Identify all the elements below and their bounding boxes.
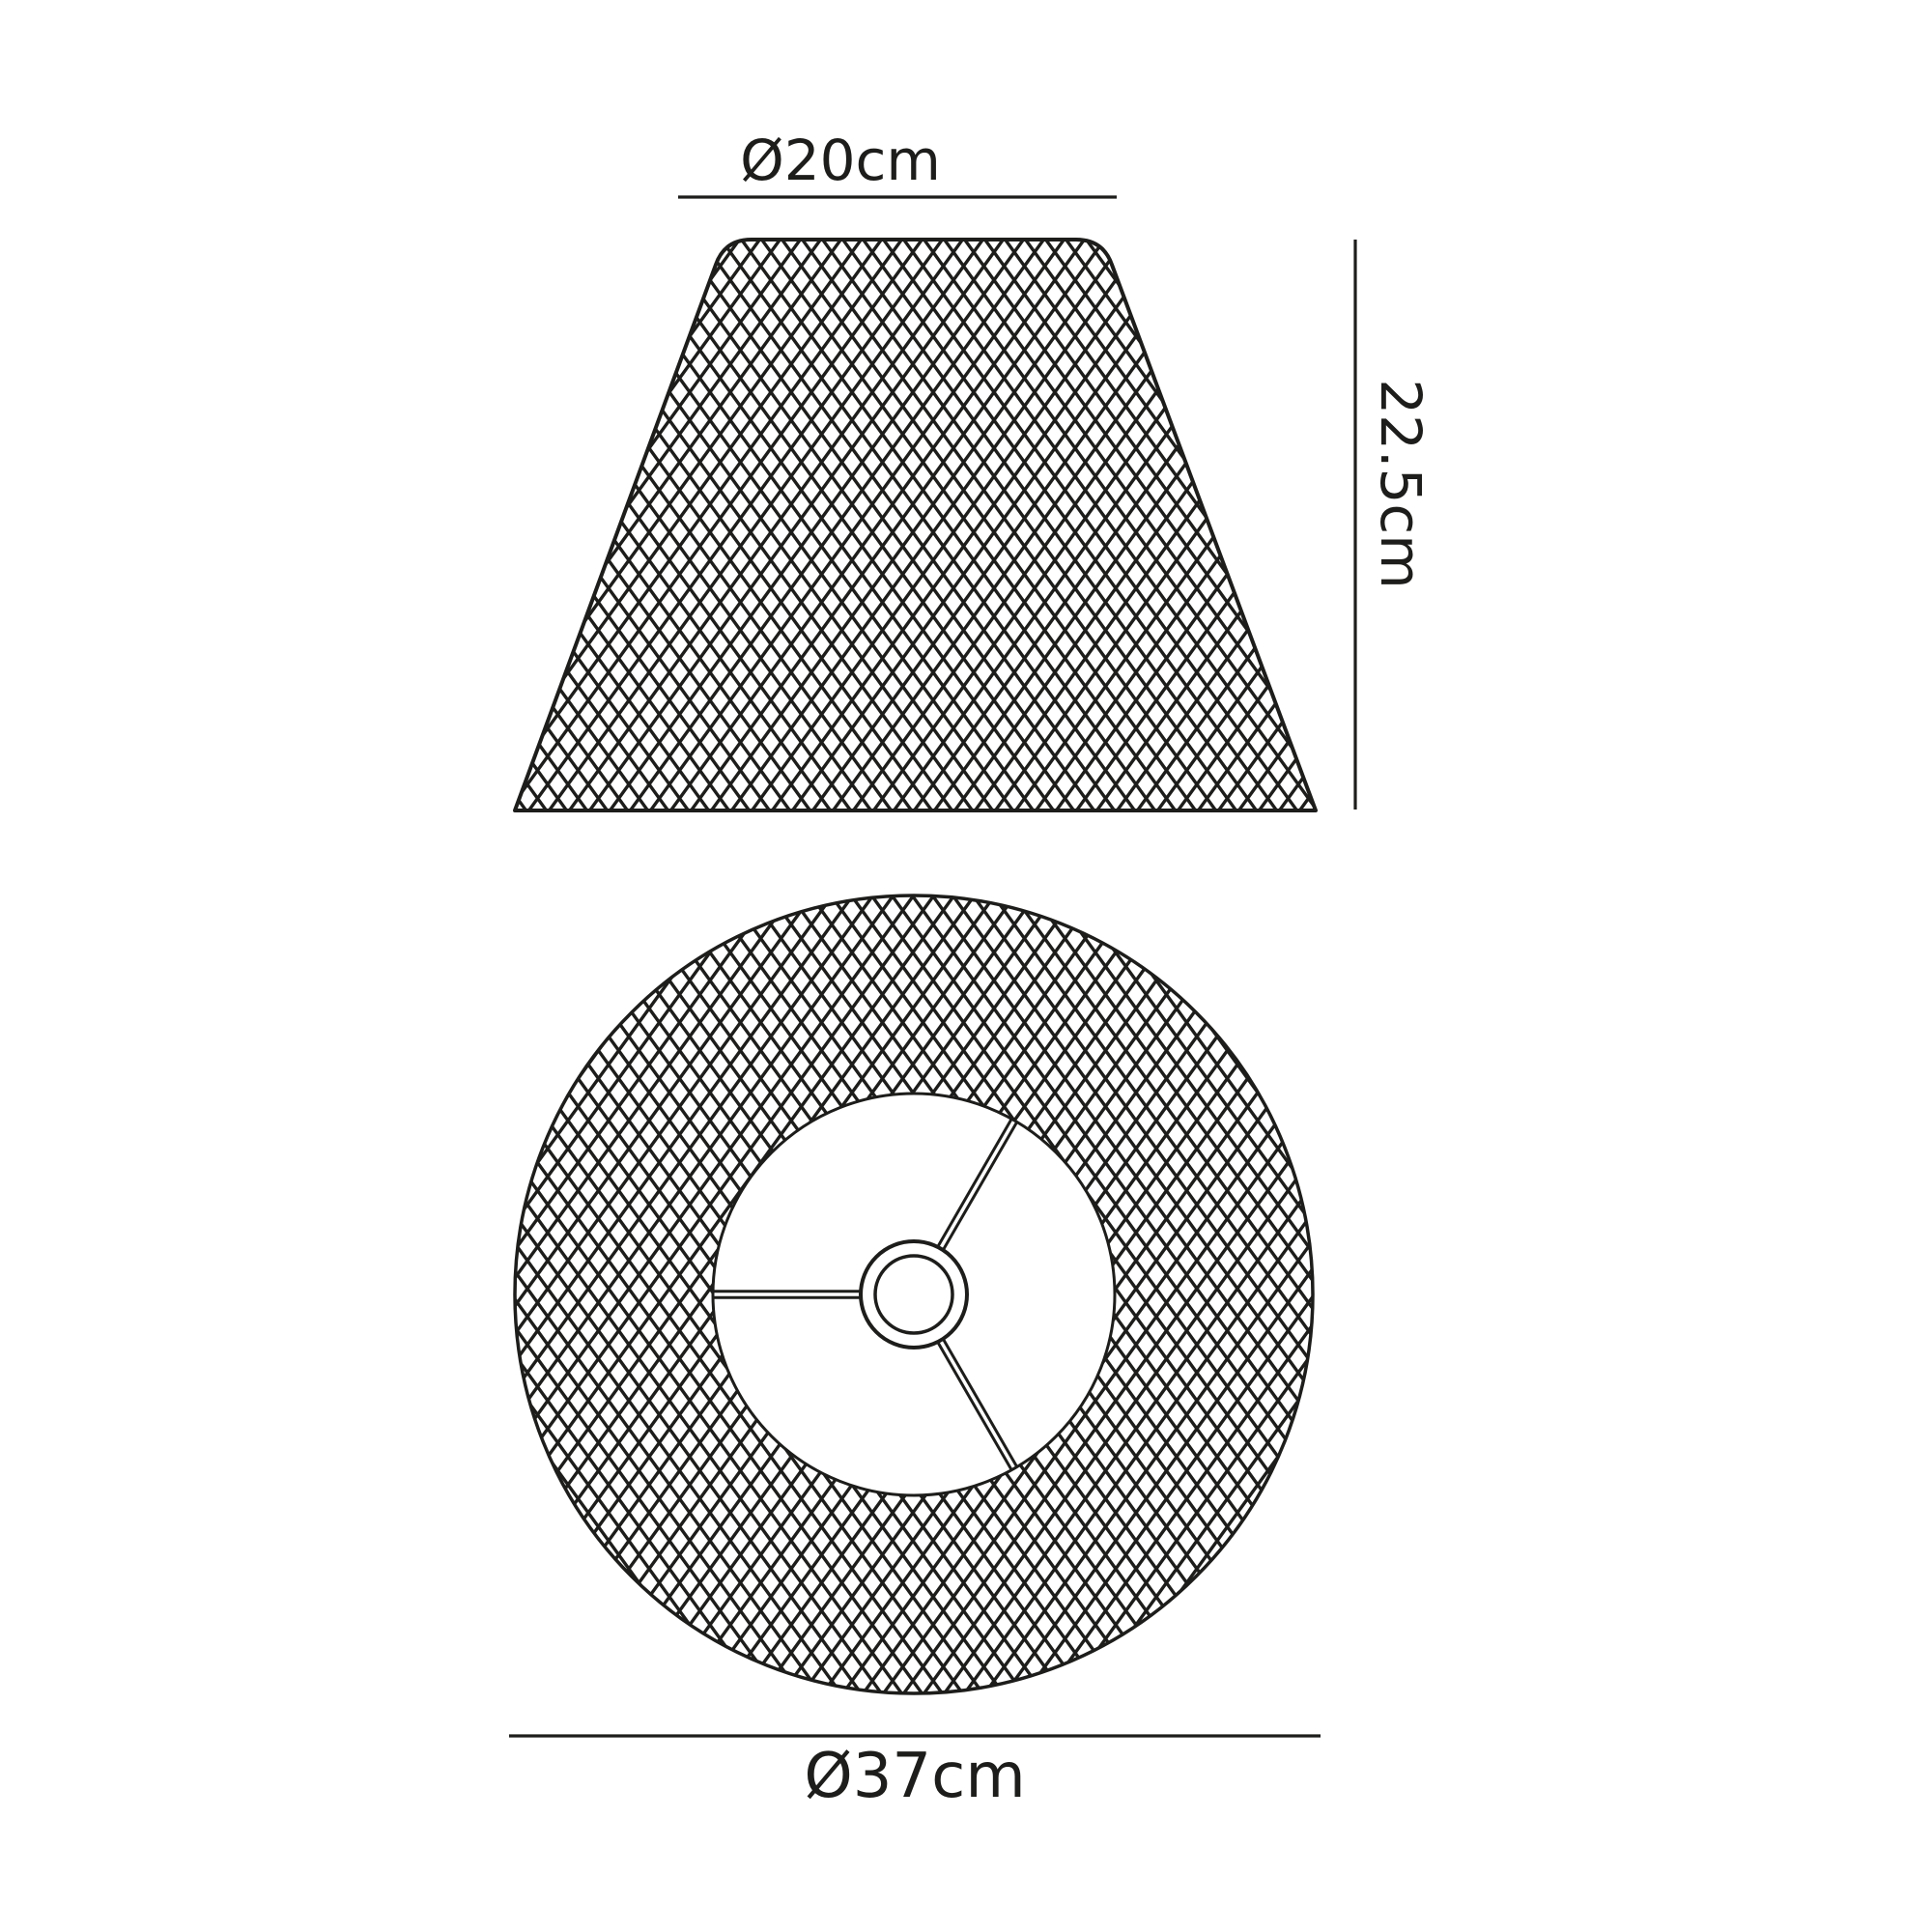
height-dimension: 22.5cm (1355, 240, 1434, 810)
bottom-diameter-dimension: Ø37cm (509, 1736, 1321, 1812)
diagram-canvas: Ø20cm 22.5cm (0, 0, 1932, 1932)
height-label: 22.5cm (1368, 379, 1434, 589)
side-view (515, 240, 1316, 810)
top-view (515, 895, 1313, 1693)
bottom-diameter-label: Ø37cm (804, 1741, 1025, 1812)
spider-hub-inner-ring (875, 1256, 952, 1333)
side-view-shade (515, 240, 1316, 810)
lampshade-dimension-diagram: Ø20cm 22.5cm (0, 0, 1932, 1932)
top-diameter-label: Ø20cm (740, 128, 941, 193)
top-diameter-dimension: Ø20cm (678, 128, 1117, 197)
